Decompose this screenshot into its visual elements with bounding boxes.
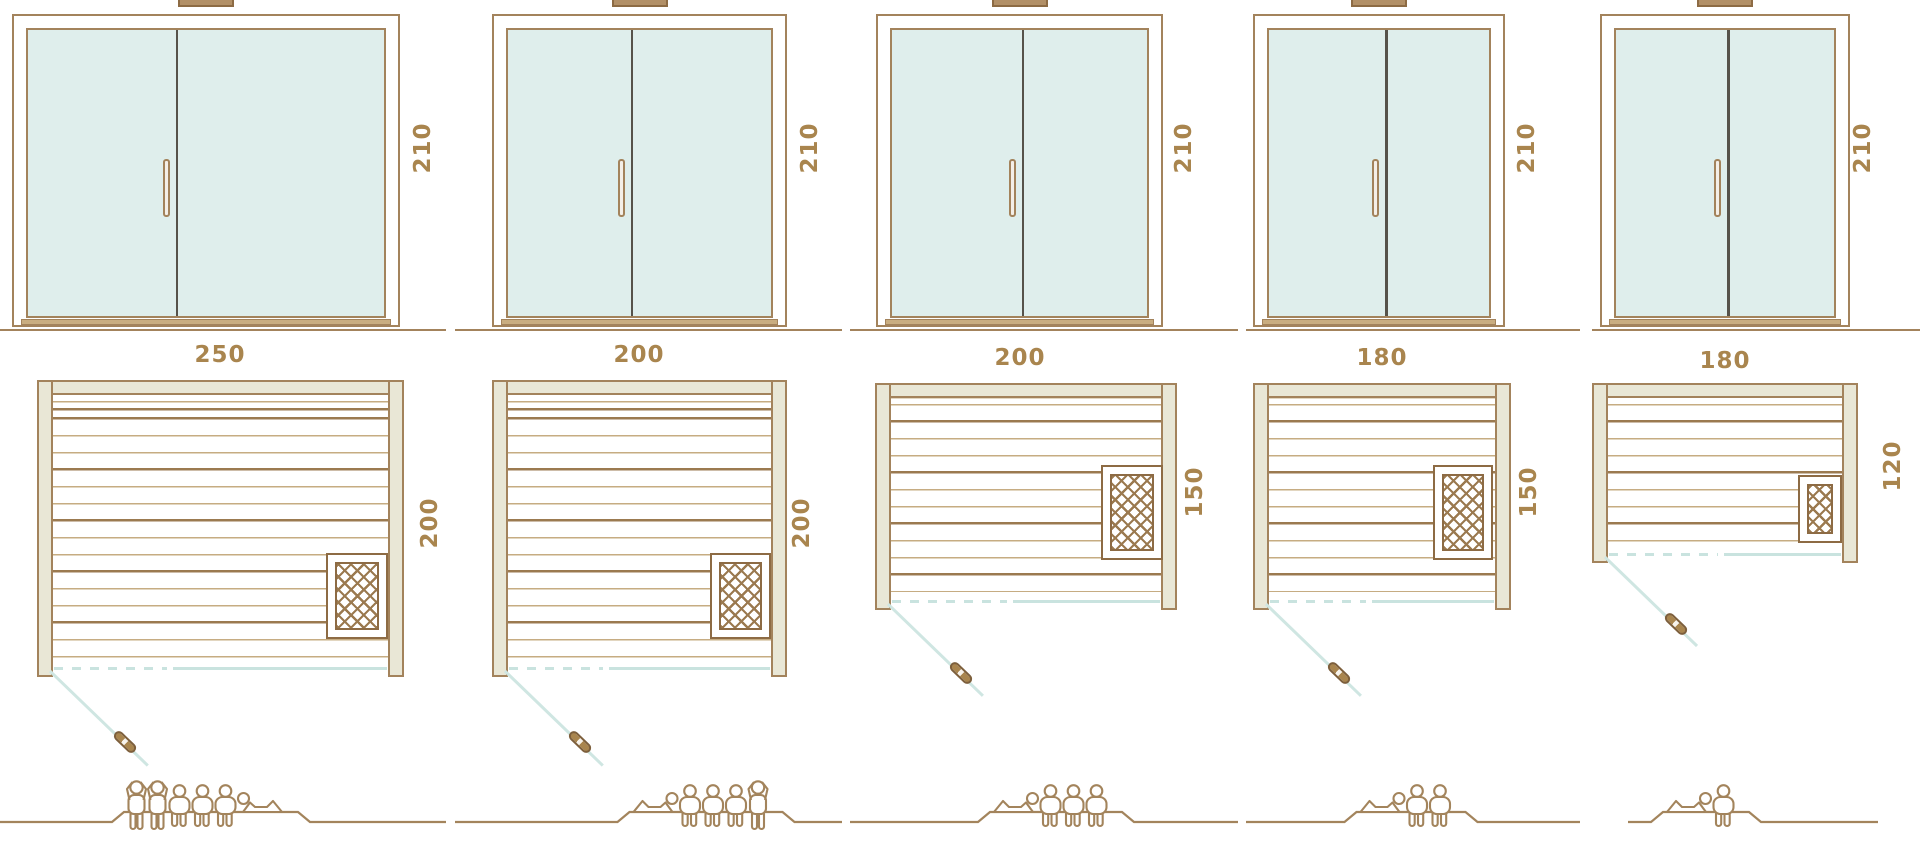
heater-icon (1798, 475, 1842, 543)
heater-grid (335, 562, 379, 630)
person-sitting-icon (1714, 785, 1734, 826)
door-sill (1609, 319, 1841, 325)
vent-cap-icon (1351, 0, 1407, 7)
plan-wall-post-left (492, 380, 508, 677)
vent-cap-icon (992, 0, 1048, 7)
person-sitting-icon (680, 785, 700, 826)
heater-icon (1433, 465, 1493, 560)
person-sitting-icon (1041, 785, 1061, 826)
door-handle (163, 159, 170, 217)
glass-front-line (1372, 600, 1494, 603)
door-swing-handle-icon (948, 660, 974, 686)
door-elevation-frame (876, 14, 1163, 327)
person-sitting-icon (1430, 785, 1450, 826)
heater-icon (1101, 465, 1163, 560)
plan-wall-post-left (37, 380, 53, 677)
person-standing-icon (749, 781, 768, 829)
glass-door-panels (26, 28, 386, 318)
person-lying-icon (634, 793, 678, 812)
plan-depth-label: 120 (1880, 434, 1906, 498)
capacity-figures (848, 768, 1241, 834)
glass-front-line (609, 667, 770, 670)
plan-wall-post-left (1253, 383, 1269, 610)
plan-depth-label: 150 (1182, 460, 1208, 524)
door-handle (618, 159, 625, 217)
door-elevation-frame (12, 14, 400, 327)
person-sitting-icon (1064, 785, 1084, 826)
door-sill (21, 319, 391, 325)
plan-depth-label: 200 (417, 491, 443, 555)
ground-line (1246, 329, 1580, 331)
glass-front-line (173, 667, 387, 670)
glass-front-line (1013, 600, 1160, 603)
door-opening-dashed-line (1609, 553, 1718, 556)
door-swing-handle-icon (1663, 611, 1689, 637)
door-elevation-frame (1253, 14, 1505, 327)
capacity-figures (1243, 768, 1589, 834)
glass-door-panels (506, 28, 773, 318)
plan-width-label: 180 (1337, 345, 1427, 371)
capacity-baseline (455, 812, 842, 822)
capacity-figures-svg (0, 768, 450, 834)
ground-line (0, 329, 446, 331)
person-sitting-icon (193, 785, 213, 826)
person-lying-icon (1361, 793, 1405, 812)
person-sitting-icon (1407, 785, 1427, 826)
capacity-figures (0, 768, 450, 834)
door-divider (1022, 30, 1025, 316)
capacity-figures-svg (452, 768, 846, 834)
door-opening-dashed-line (892, 600, 1007, 603)
glass-door-panels (1267, 28, 1491, 318)
capacity-figures-svg (1243, 768, 1589, 834)
door-height-label: 210 (797, 116, 823, 180)
door-handle (1714, 159, 1721, 217)
plan-depth-label: 150 (1516, 460, 1542, 524)
door-height-label: 210 (1171, 116, 1197, 180)
heater-grid (1442, 474, 1484, 551)
glass-door-panels (1614, 28, 1836, 318)
door-sill (1262, 319, 1496, 325)
door-divider (176, 30, 179, 316)
plan-wall-post-left (1592, 383, 1608, 563)
plan-width-label: 250 (175, 342, 265, 368)
plan-wall-top (875, 383, 1177, 398)
door-swing-handle-icon (567, 729, 593, 755)
door-elevation-frame (492, 14, 787, 327)
door-handle (1372, 159, 1379, 217)
door-divider (1385, 30, 1388, 316)
door-sill (501, 319, 778, 325)
ground-line (455, 329, 842, 331)
plan-wall-post-right (1495, 383, 1511, 610)
glass-front-line (1724, 553, 1841, 556)
capacity-figures-svg (1591, 768, 1920, 834)
person-standing-icon (127, 781, 146, 829)
vent-cap-icon (1697, 0, 1753, 7)
heater-icon (326, 553, 388, 639)
plan-wall-post-right (1842, 383, 1858, 563)
door-divider (631, 30, 634, 316)
heater-grid (1110, 474, 1154, 551)
heater-grid (1807, 484, 1833, 534)
plan-wall-post-right (771, 380, 787, 677)
person-sitting-icon (726, 785, 746, 826)
plan-wall-top (492, 380, 787, 395)
person-sitting-icon (216, 785, 236, 826)
capacity-figures (452, 768, 846, 834)
plan-width-label: 200 (975, 345, 1065, 371)
plan-wall-post-right (388, 380, 404, 677)
vent-cap-icon (178, 0, 234, 7)
glass-door-panels (890, 28, 1149, 318)
door-swing-handle-icon (1326, 660, 1352, 686)
capacity-figures-svg (848, 768, 1241, 834)
plan-wall-post-right (1161, 383, 1177, 610)
capacity-figures (1591, 768, 1920, 834)
person-sitting-icon (703, 785, 723, 826)
plan-wall-top (37, 380, 404, 395)
plan-wall-top (1592, 383, 1858, 398)
plan-wall-top (1253, 383, 1511, 398)
door-height-label: 210 (410, 116, 436, 180)
door-height-label: 210 (1514, 116, 1540, 180)
door-height-label: 210 (1850, 116, 1876, 180)
heater-grid (719, 562, 762, 630)
person-sitting-icon (170, 785, 190, 826)
door-opening-dashed-line (54, 667, 167, 670)
door-divider (1727, 30, 1730, 316)
door-opening-dashed-line (1270, 600, 1366, 603)
door-handle (1009, 159, 1016, 217)
ground-line (850, 329, 1238, 331)
door-elevation-frame (1600, 14, 1850, 327)
door-swing-handle-icon (112, 729, 138, 755)
person-lying-icon (1667, 793, 1711, 812)
heater-icon (710, 553, 771, 639)
plan-wall-post-left (875, 383, 891, 610)
person-standing-icon (148, 781, 167, 829)
plan-width-label: 180 (1680, 348, 1770, 374)
person-lying-icon (994, 793, 1038, 812)
capacity-baseline (1628, 812, 1878, 822)
sauna-size-diagram: 210250200 210200200 210200150 (0, 0, 1920, 856)
ground-line (1592, 329, 1920, 331)
door-opening-dashed-line (509, 667, 603, 670)
vent-cap-icon (612, 0, 668, 7)
plan-width-label: 200 (594, 342, 684, 368)
person-lying-icon (238, 793, 282, 812)
plan-depth-label: 200 (789, 491, 815, 555)
door-sill (885, 319, 1154, 325)
person-sitting-icon (1087, 785, 1107, 826)
